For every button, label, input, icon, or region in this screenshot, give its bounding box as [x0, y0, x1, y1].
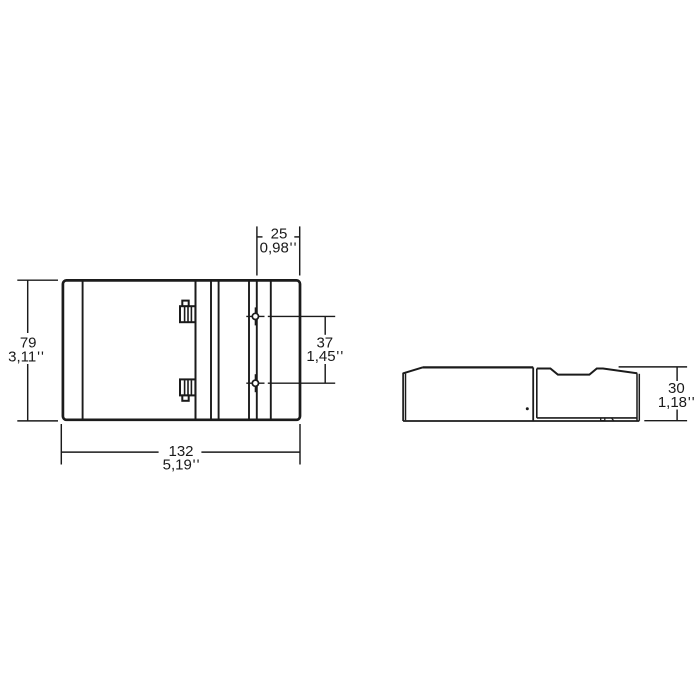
svg-text:5,19'': 5,19'' [163, 457, 201, 474]
svg-text:1,18'': 1,18'' [658, 394, 696, 411]
svg-text:3,11'': 3,11'' [8, 348, 45, 365]
svg-text:0,98'': 0,98'' [260, 239, 298, 256]
svg-text:1,45'': 1,45'' [306, 348, 344, 365]
